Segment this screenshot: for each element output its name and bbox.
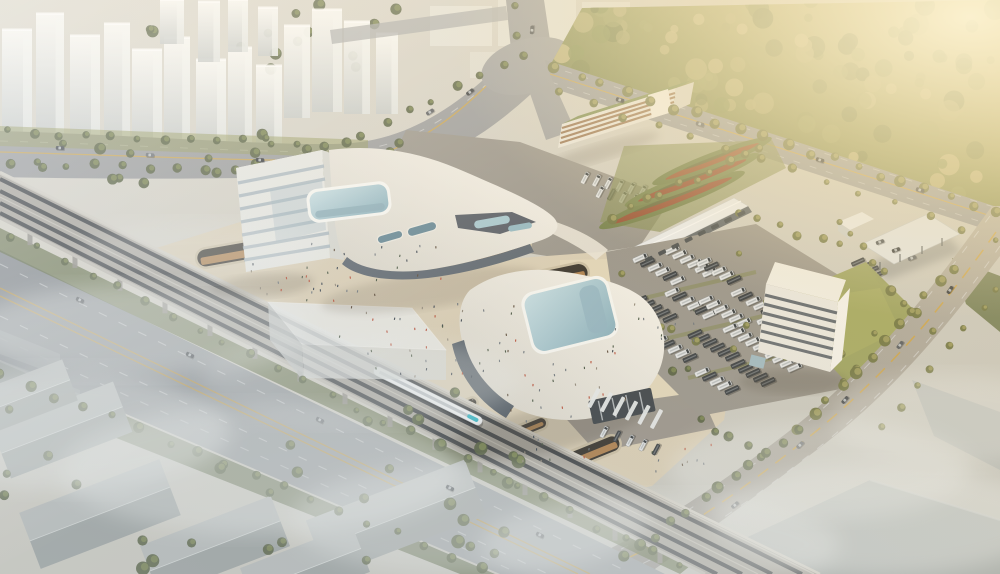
aerial-render-svg <box>0 0 1000 574</box>
sun-glow <box>0 0 1000 574</box>
architectural-rendering-canvas <box>0 0 1000 574</box>
